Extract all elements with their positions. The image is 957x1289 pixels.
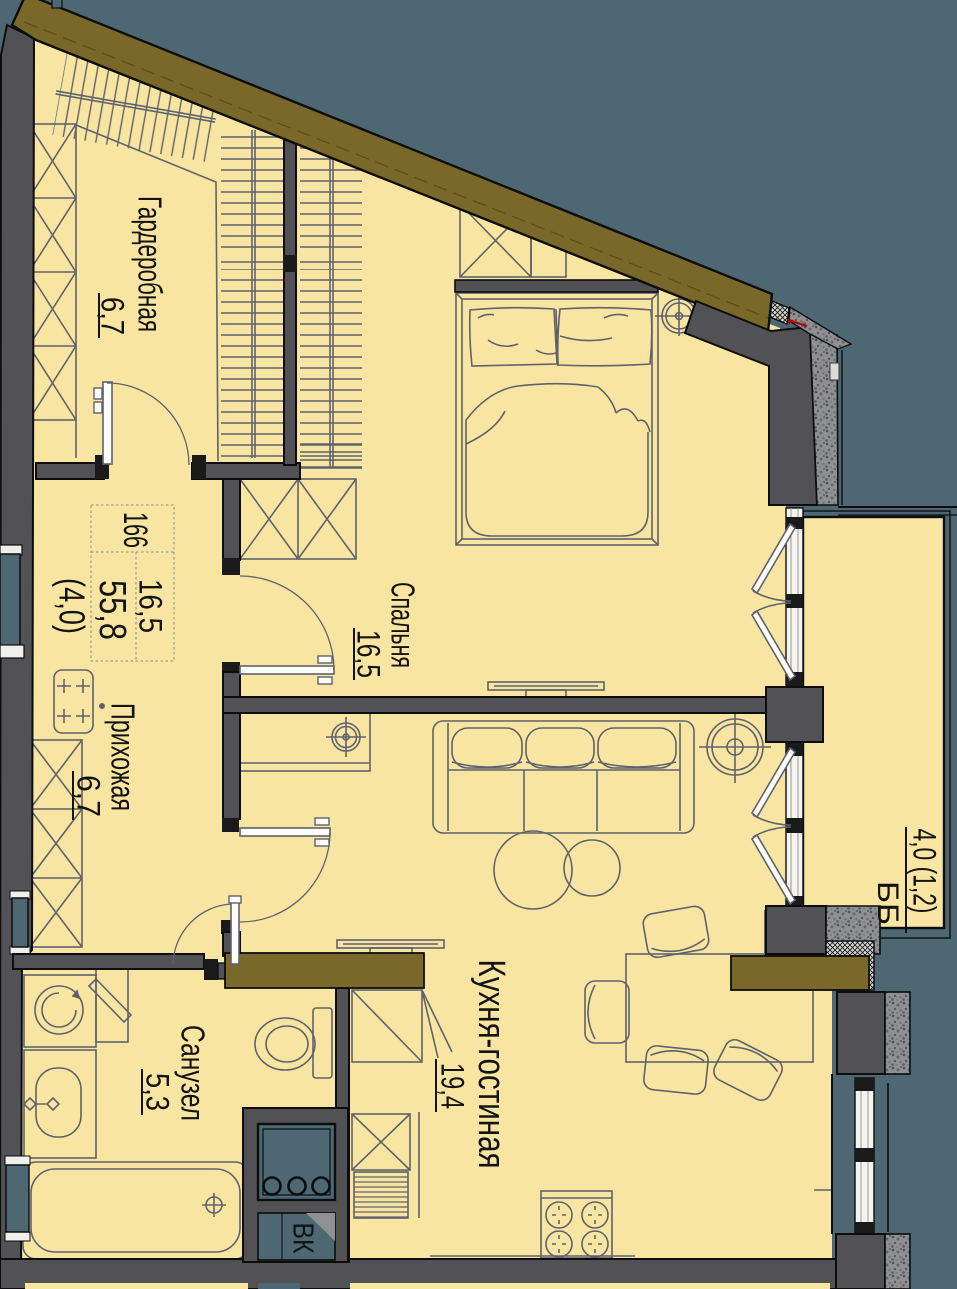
svg-text:ВК: ВК (286, 1223, 318, 1254)
svg-text:Кухня-гостиная: Кухня-гостиная (470, 960, 512, 1169)
svg-text:55,8: 55,8 (91, 580, 133, 640)
svg-text:19,4: 19,4 (435, 1063, 471, 1109)
svg-text:Спальня: Спальня (384, 582, 421, 668)
svg-text:ББ: ББ (871, 881, 904, 925)
svg-text:4,0 (1,2): 4,0 (1,2) (907, 829, 943, 914)
svg-text:Санузел: Санузел (174, 1025, 211, 1121)
svg-text:Гардеробная: Гардеробная (131, 196, 168, 332)
svg-text:16,5: 16,5 (351, 630, 387, 678)
svg-text:5,3: 5,3 (140, 1073, 176, 1111)
svg-text:(4,0): (4,0) (51, 578, 92, 634)
svg-text:6,7: 6,7 (71, 775, 107, 817)
svg-text:166: 166 (116, 512, 154, 548)
svg-text:Прихожая: Прихожая (104, 703, 141, 811)
svg-text:16,5: 16,5 (133, 579, 169, 633)
